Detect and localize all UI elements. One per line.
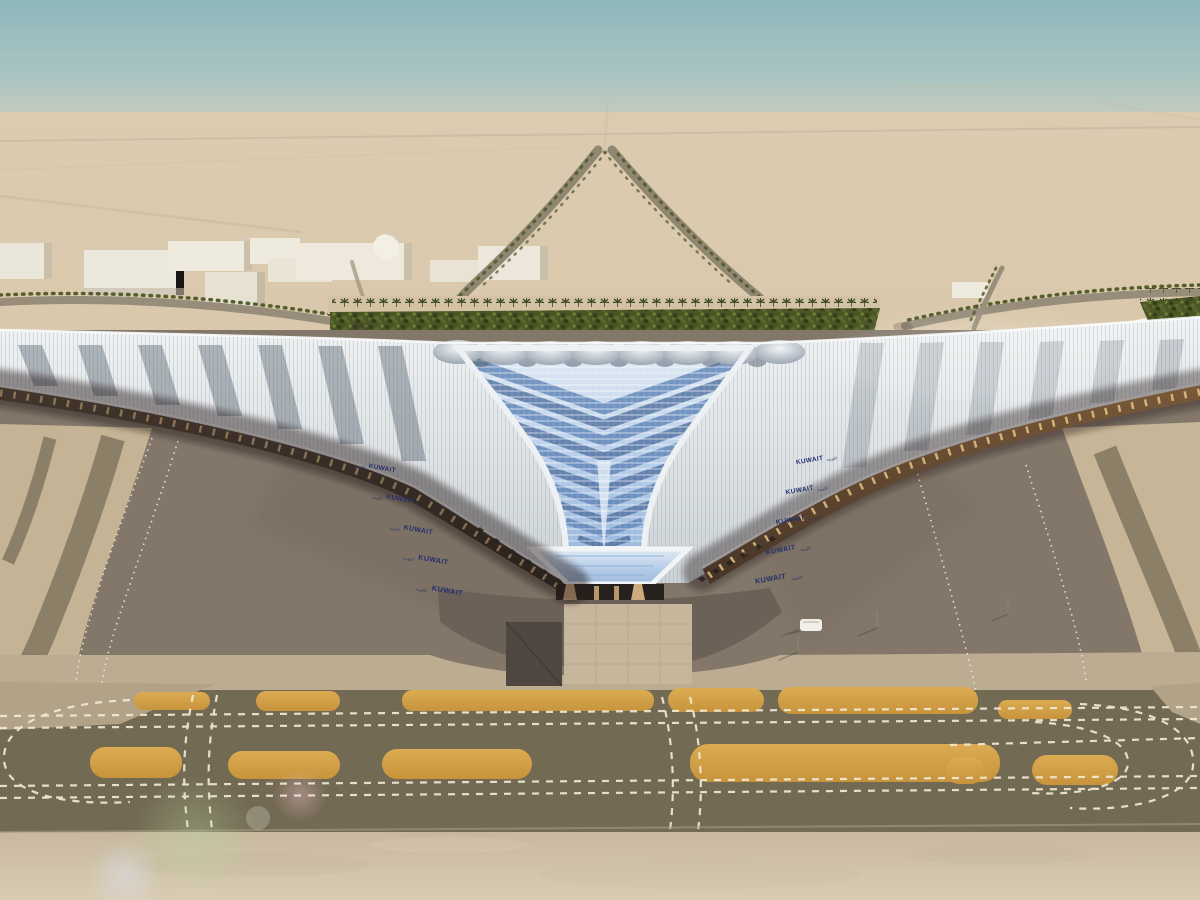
building (0, 243, 52, 279)
building (168, 241, 252, 271)
service-van (800, 619, 822, 631)
palm-row-right (1140, 288, 1200, 301)
rendering-stage: KUWAIT الكويتية KUWAIT الكويتية KUWAIT ا… (0, 0, 1200, 900)
airport-aerial-rendering: KUWAIT الكويتية KUWAIT الكويتية KUWAIT ا… (0, 0, 1200, 900)
